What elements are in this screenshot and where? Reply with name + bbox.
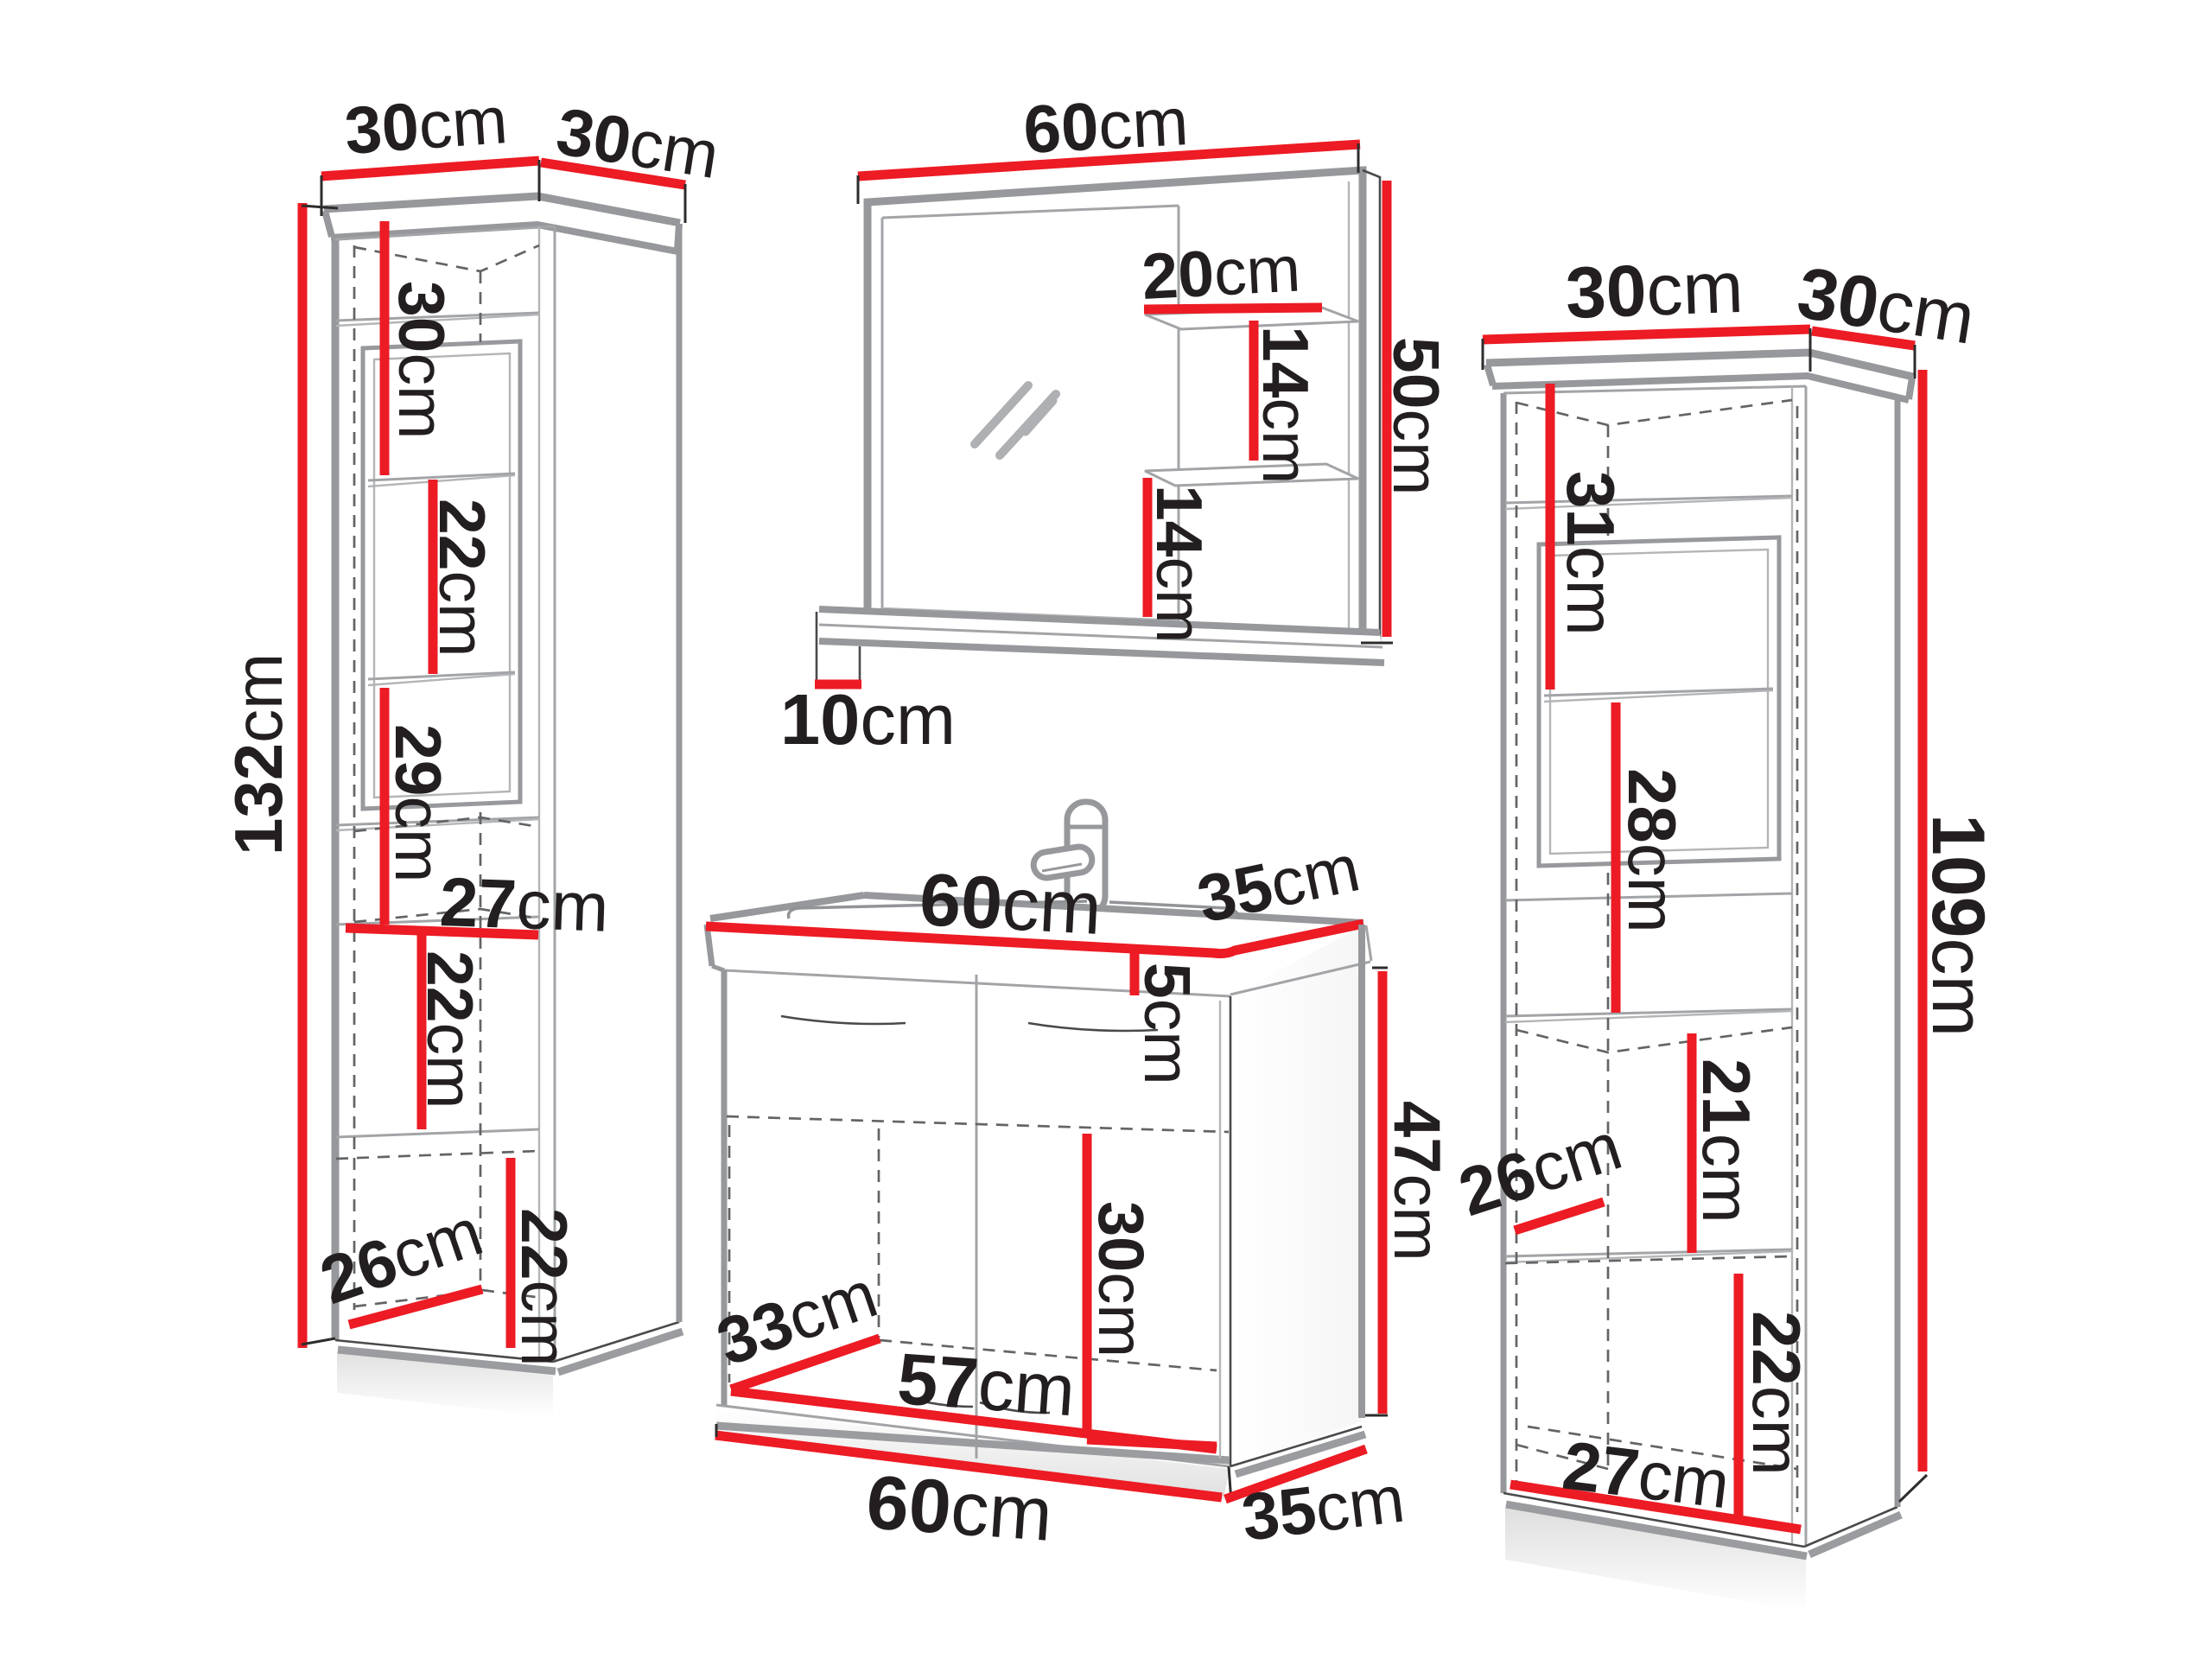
svg-text:30cm: 30cm xyxy=(385,281,458,439)
svg-text:27cm: 27cm xyxy=(438,863,610,946)
svg-text:47cm: 47cm xyxy=(1380,1101,1453,1262)
svg-text:22cm: 22cm xyxy=(508,1208,581,1366)
svg-text:60cm: 60cm xyxy=(1021,83,1190,168)
svg-text:10cm: 10cm xyxy=(780,679,956,760)
svg-text:21cm: 21cm xyxy=(1688,1058,1764,1224)
svg-text:20cm: 20cm xyxy=(1140,232,1302,312)
svg-text:14cm: 14cm xyxy=(1249,326,1322,484)
svg-text:60cm: 60cm xyxy=(918,858,1103,950)
svg-text:22cm: 22cm xyxy=(426,499,499,657)
svg-text:5cm: 5cm xyxy=(1131,963,1204,1085)
svg-text:14cm: 14cm xyxy=(1143,485,1216,643)
svg-text:28cm: 28cm xyxy=(1614,768,1690,933)
svg-text:22cm: 22cm xyxy=(1738,1311,1815,1476)
svg-text:29cm: 29cm xyxy=(382,724,454,882)
svg-text:30cm: 30cm xyxy=(1085,1201,1157,1357)
svg-text:22cm: 22cm xyxy=(414,950,486,1109)
svg-text:57cm: 57cm xyxy=(895,1338,1077,1431)
svg-text:132cm: 132cm xyxy=(220,653,296,855)
svg-text:30cm: 30cm xyxy=(342,83,510,168)
svg-text:31cm: 31cm xyxy=(1553,471,1629,636)
svg-text:109cm: 109cm xyxy=(1916,814,1999,1037)
svg-text:30cm: 30cm xyxy=(1564,246,1745,334)
svg-text:50cm: 50cm xyxy=(1380,337,1452,495)
svg-text:60cm: 60cm xyxy=(864,1459,1056,1557)
